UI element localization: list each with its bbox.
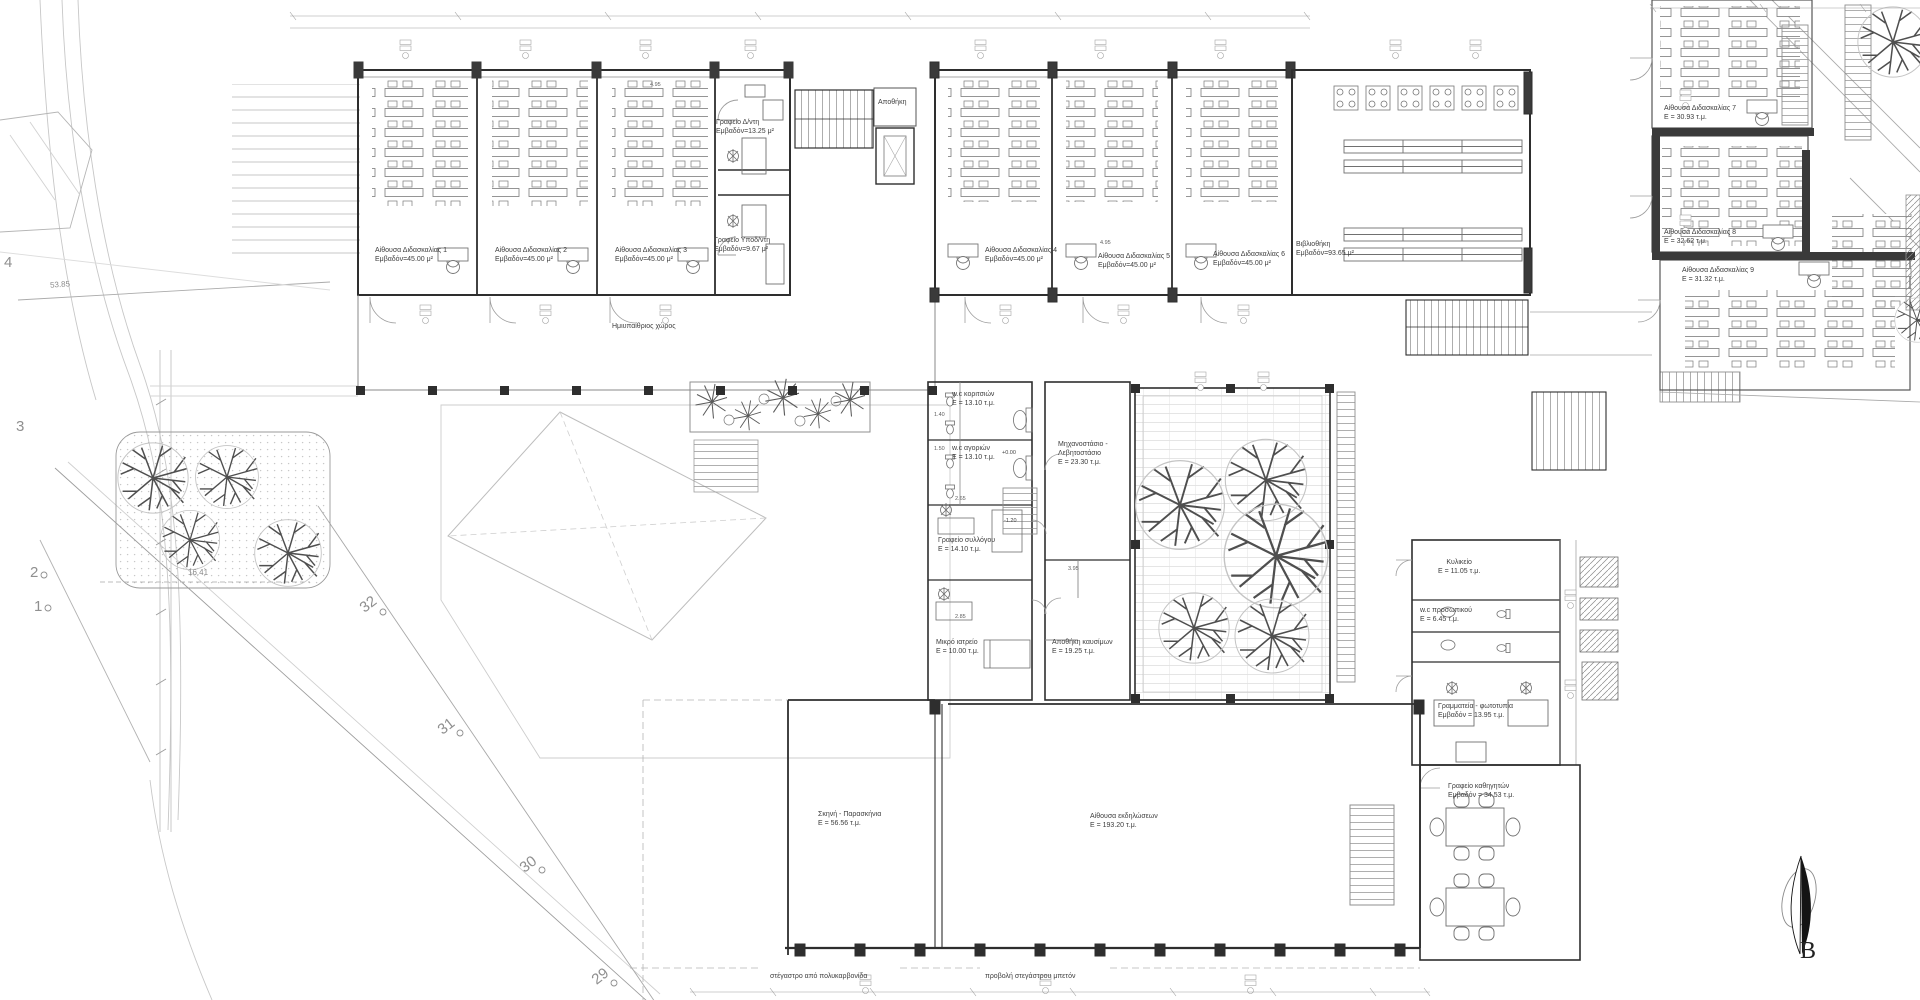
label-library: ΒιβλιοθήκηΕμβαδόν=93.65 μ² xyxy=(1296,240,1354,258)
secretariat-desks xyxy=(1434,681,1548,762)
label-classroom-2: Αίθουσα Διδασκαλίας 2Εμβαδόν=45.00 μ² xyxy=(495,246,567,264)
dim-495: 4.95 xyxy=(650,82,661,88)
label-classroom-7: Αίθουσα Διδασκαλίας 7Ε = 30.93 τ.μ. xyxy=(1664,104,1736,122)
label-boiler-room: Μηχανοστάσιο - ΛεβητοστάσιοΕ = 23.30 τ.μ… xyxy=(1058,440,1120,467)
label-stage: Σκηνή - ΠαρασκήνιαΕ = 56.56 τ.μ. xyxy=(818,810,881,828)
label-classroom-8: Αίθουσα Διδασκαλίας 8Ε = 32.62 τ.μ. xyxy=(1664,228,1736,246)
label-classroom-3: Αίθουσα Διδασκαλίας 3Εμβαδόν=45.00 μ² xyxy=(615,246,687,264)
level-mark-minus: -1.20 xyxy=(1004,518,1017,524)
label-teachers-office: Γραφείο καθηγητώνΕμβαδόν = 34.53 τ.μ. xyxy=(1448,782,1514,800)
label-infirmary: Μικρό ιατρείοΕ = 10.00 τ.μ. xyxy=(936,638,979,656)
atrium-courtyard xyxy=(1131,384,1334,703)
label-canopy-polycarbonate: στέγαστρο από πολυκαρβονίδα xyxy=(770,972,867,981)
secretariat-block xyxy=(1396,540,1618,765)
dim-265: 2.65 xyxy=(955,496,966,502)
site-number-1: 1 xyxy=(34,598,42,615)
dim-395: 3.95 xyxy=(1068,566,1079,572)
palm-icon xyxy=(804,398,831,428)
dim-150: 1.50 xyxy=(934,446,945,452)
level-mark-zero: +0.00 xyxy=(1002,450,1016,456)
north-letter: Β xyxy=(1800,938,1816,965)
event-hall-block xyxy=(630,700,1424,1000)
label-director-office: Γραφείο Δ/ντηΕμβαδόν=13.25 μ² xyxy=(716,118,774,136)
label-canteen: ΚυλικείοΕ = 11.05 τ.μ. xyxy=(1438,558,1480,576)
floorplan-canvas: Αίθουσα Διδασκαλίας 1Εμβαδόν=45.00 μ² Αί… xyxy=(0,0,1920,1000)
label-event-hall: Αίθουσα εκδηλώσεωνΕ = 193.20 τ.μ. xyxy=(1090,812,1158,830)
wing-classrooms-4-6 xyxy=(930,62,1295,323)
label-wc-girls: w.c κοριτσιώνΕ = 13.10 τ.μ. xyxy=(952,390,995,408)
label-staff-wc: w.c προσωπικούΕ = 6.45 τ.μ. xyxy=(1420,606,1472,624)
label-fuel-storage: Αποθήκη καυσίμωνΕ = 19.25 τ.μ. xyxy=(1052,638,1113,656)
label-storage: Αποθήκη xyxy=(878,98,906,107)
dim-495b: 4.95 xyxy=(1100,240,1111,246)
semi-open-colonnade xyxy=(356,295,937,395)
dim-53-85: 53.85 xyxy=(50,279,71,289)
label-deputy-office: Γραφείο Υποδ/ντηΕμβαδόν=9.67 μ² xyxy=(714,236,770,254)
label-association-office: Γραφείο συλλόγουΕ = 14.10 τ.μ. xyxy=(938,536,995,554)
wing-classrooms-1-3 xyxy=(354,62,793,323)
site-number-3: 3 xyxy=(16,418,24,435)
library-room xyxy=(1292,70,1532,295)
dim-140: 1.40 xyxy=(934,412,945,418)
label-semi-open: Ημιυπαίθριος χώρος xyxy=(612,322,676,331)
hall-fire-stairs xyxy=(1350,805,1394,905)
label-classroom-5: Αίθουσα Διδασκαλίας 5Εμβαδόν=45.00 μ² xyxy=(1098,252,1170,270)
dim-285: 2.85 xyxy=(955,614,966,620)
site-number-4: 4 xyxy=(4,254,12,271)
kitchen-counter xyxy=(1334,86,1518,110)
label-secretariat: Γραμματεία - φωτοτυπίαΕμβαδόν = 13.95 τ.… xyxy=(1438,702,1513,720)
dim-16-41: 16.41 xyxy=(188,568,208,577)
label-classroom-9: Αίθουσα Διδασκαλίας 9Ε = 31.32 τ.μ. xyxy=(1682,266,1754,284)
service-shafts xyxy=(1580,557,1618,700)
label-classroom-6: Αίθουσα Διδασκαλίας 6Εμβαδόν=45.00 μ² xyxy=(1213,250,1285,268)
core-stairs xyxy=(1003,488,1037,534)
site-number-2: 2 xyxy=(30,564,38,581)
exterior-stairs xyxy=(694,440,758,492)
palm-icon xyxy=(765,379,799,416)
label-classroom-1: Αίθουσα Διδασκαλίας 1Εμβαδόν=45.00 μ² xyxy=(375,246,447,264)
label-canopy-concrete: προβολή στεγάστρου μπετόν xyxy=(985,972,1075,981)
garden-planter xyxy=(116,432,330,588)
library-tables xyxy=(1344,140,1522,261)
palm-planter xyxy=(690,379,870,492)
label-wc-boys: w.c αγοριώνΕ = 13.10 τ.μ. xyxy=(952,444,995,462)
wing-classrooms-7-9 xyxy=(1630,0,1920,390)
label-classroom-4: Αίθουσα Διδασκαλίας 4Εμβαδόν=45.00 μ² xyxy=(985,246,1057,264)
